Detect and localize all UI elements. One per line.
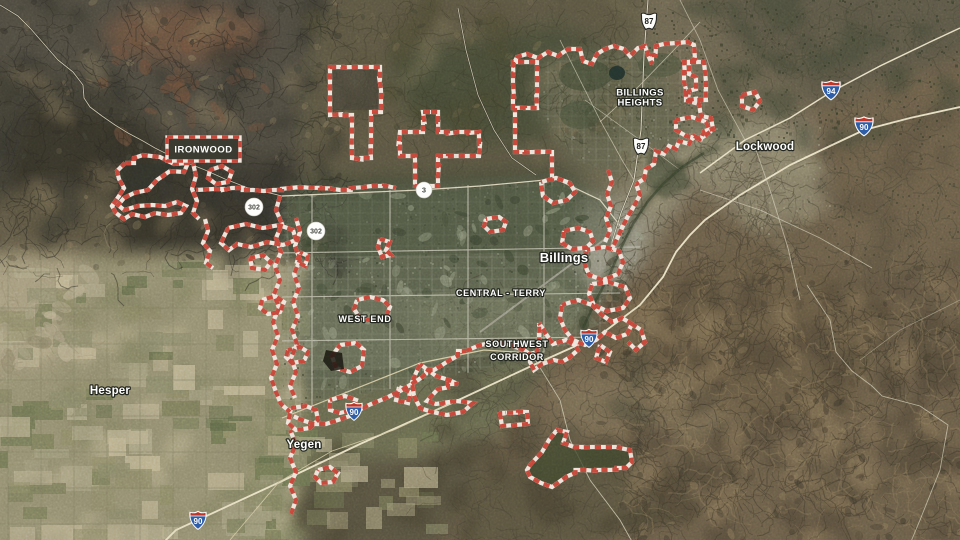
svg-text:CENTRAL - TERRY: CENTRAL - TERRY	[456, 288, 546, 298]
svg-text:Billings: Billings	[540, 250, 589, 265]
svg-text:HEIGHTS: HEIGHTS	[617, 98, 662, 109]
svg-text:90: 90	[350, 408, 359, 417]
svg-text:SOUTHWEST: SOUTHWEST	[486, 339, 549, 349]
svg-text:Hesper: Hesper	[90, 385, 131, 397]
svg-text:87: 87	[637, 142, 646, 151]
svg-text:87: 87	[645, 17, 654, 26]
svg-text:WEST END: WEST END	[338, 314, 391, 324]
svg-text:Yegen: Yegen	[287, 439, 322, 451]
svg-text:90: 90	[585, 335, 594, 344]
svg-text:CORRIDOR: CORRIDOR	[490, 352, 544, 362]
svg-text:3: 3	[422, 186, 426, 195]
svg-text:302: 302	[310, 229, 322, 236]
svg-text:90: 90	[194, 517, 203, 526]
svg-text:90: 90	[860, 123, 869, 132]
svg-text:Lockwood: Lockwood	[736, 141, 794, 153]
svg-text:302: 302	[248, 205, 260, 212]
svg-text:IRONWOOD: IRONWOOD	[174, 145, 232, 156]
svg-text:94: 94	[827, 87, 836, 96]
